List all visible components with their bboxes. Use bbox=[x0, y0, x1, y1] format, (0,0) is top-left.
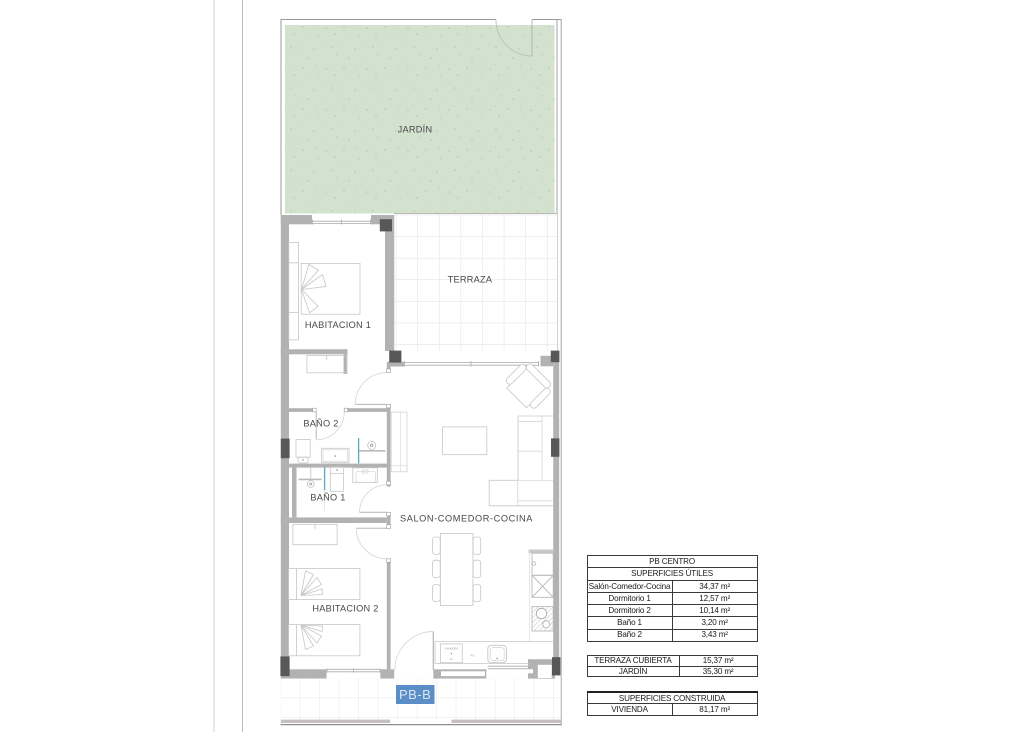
svg-text:BAÑO 2: BAÑO 2 bbox=[303, 419, 338, 429]
svg-text:LV: LV bbox=[450, 657, 453, 661]
svg-text:PB-B: PB-B bbox=[399, 687, 431, 702]
svg-text:HABITACION 2: HABITACION 2 bbox=[312, 604, 378, 614]
svg-text:FG: FG bbox=[470, 654, 475, 658]
svg-text:SALON-COMEDOR-COCINA: SALON-COMEDOR-COCINA bbox=[400, 514, 533, 524]
svg-text:TERRAZA: TERRAZA bbox=[448, 275, 493, 285]
svg-text:LAVADORA: LAVADORA bbox=[444, 646, 458, 650]
svg-text:JARDÍN: JARDÍN bbox=[398, 125, 433, 135]
svg-text:BAÑO 1: BAÑO 1 bbox=[310, 493, 345, 503]
svg-text:HABITACION 1: HABITACION 1 bbox=[305, 320, 371, 330]
